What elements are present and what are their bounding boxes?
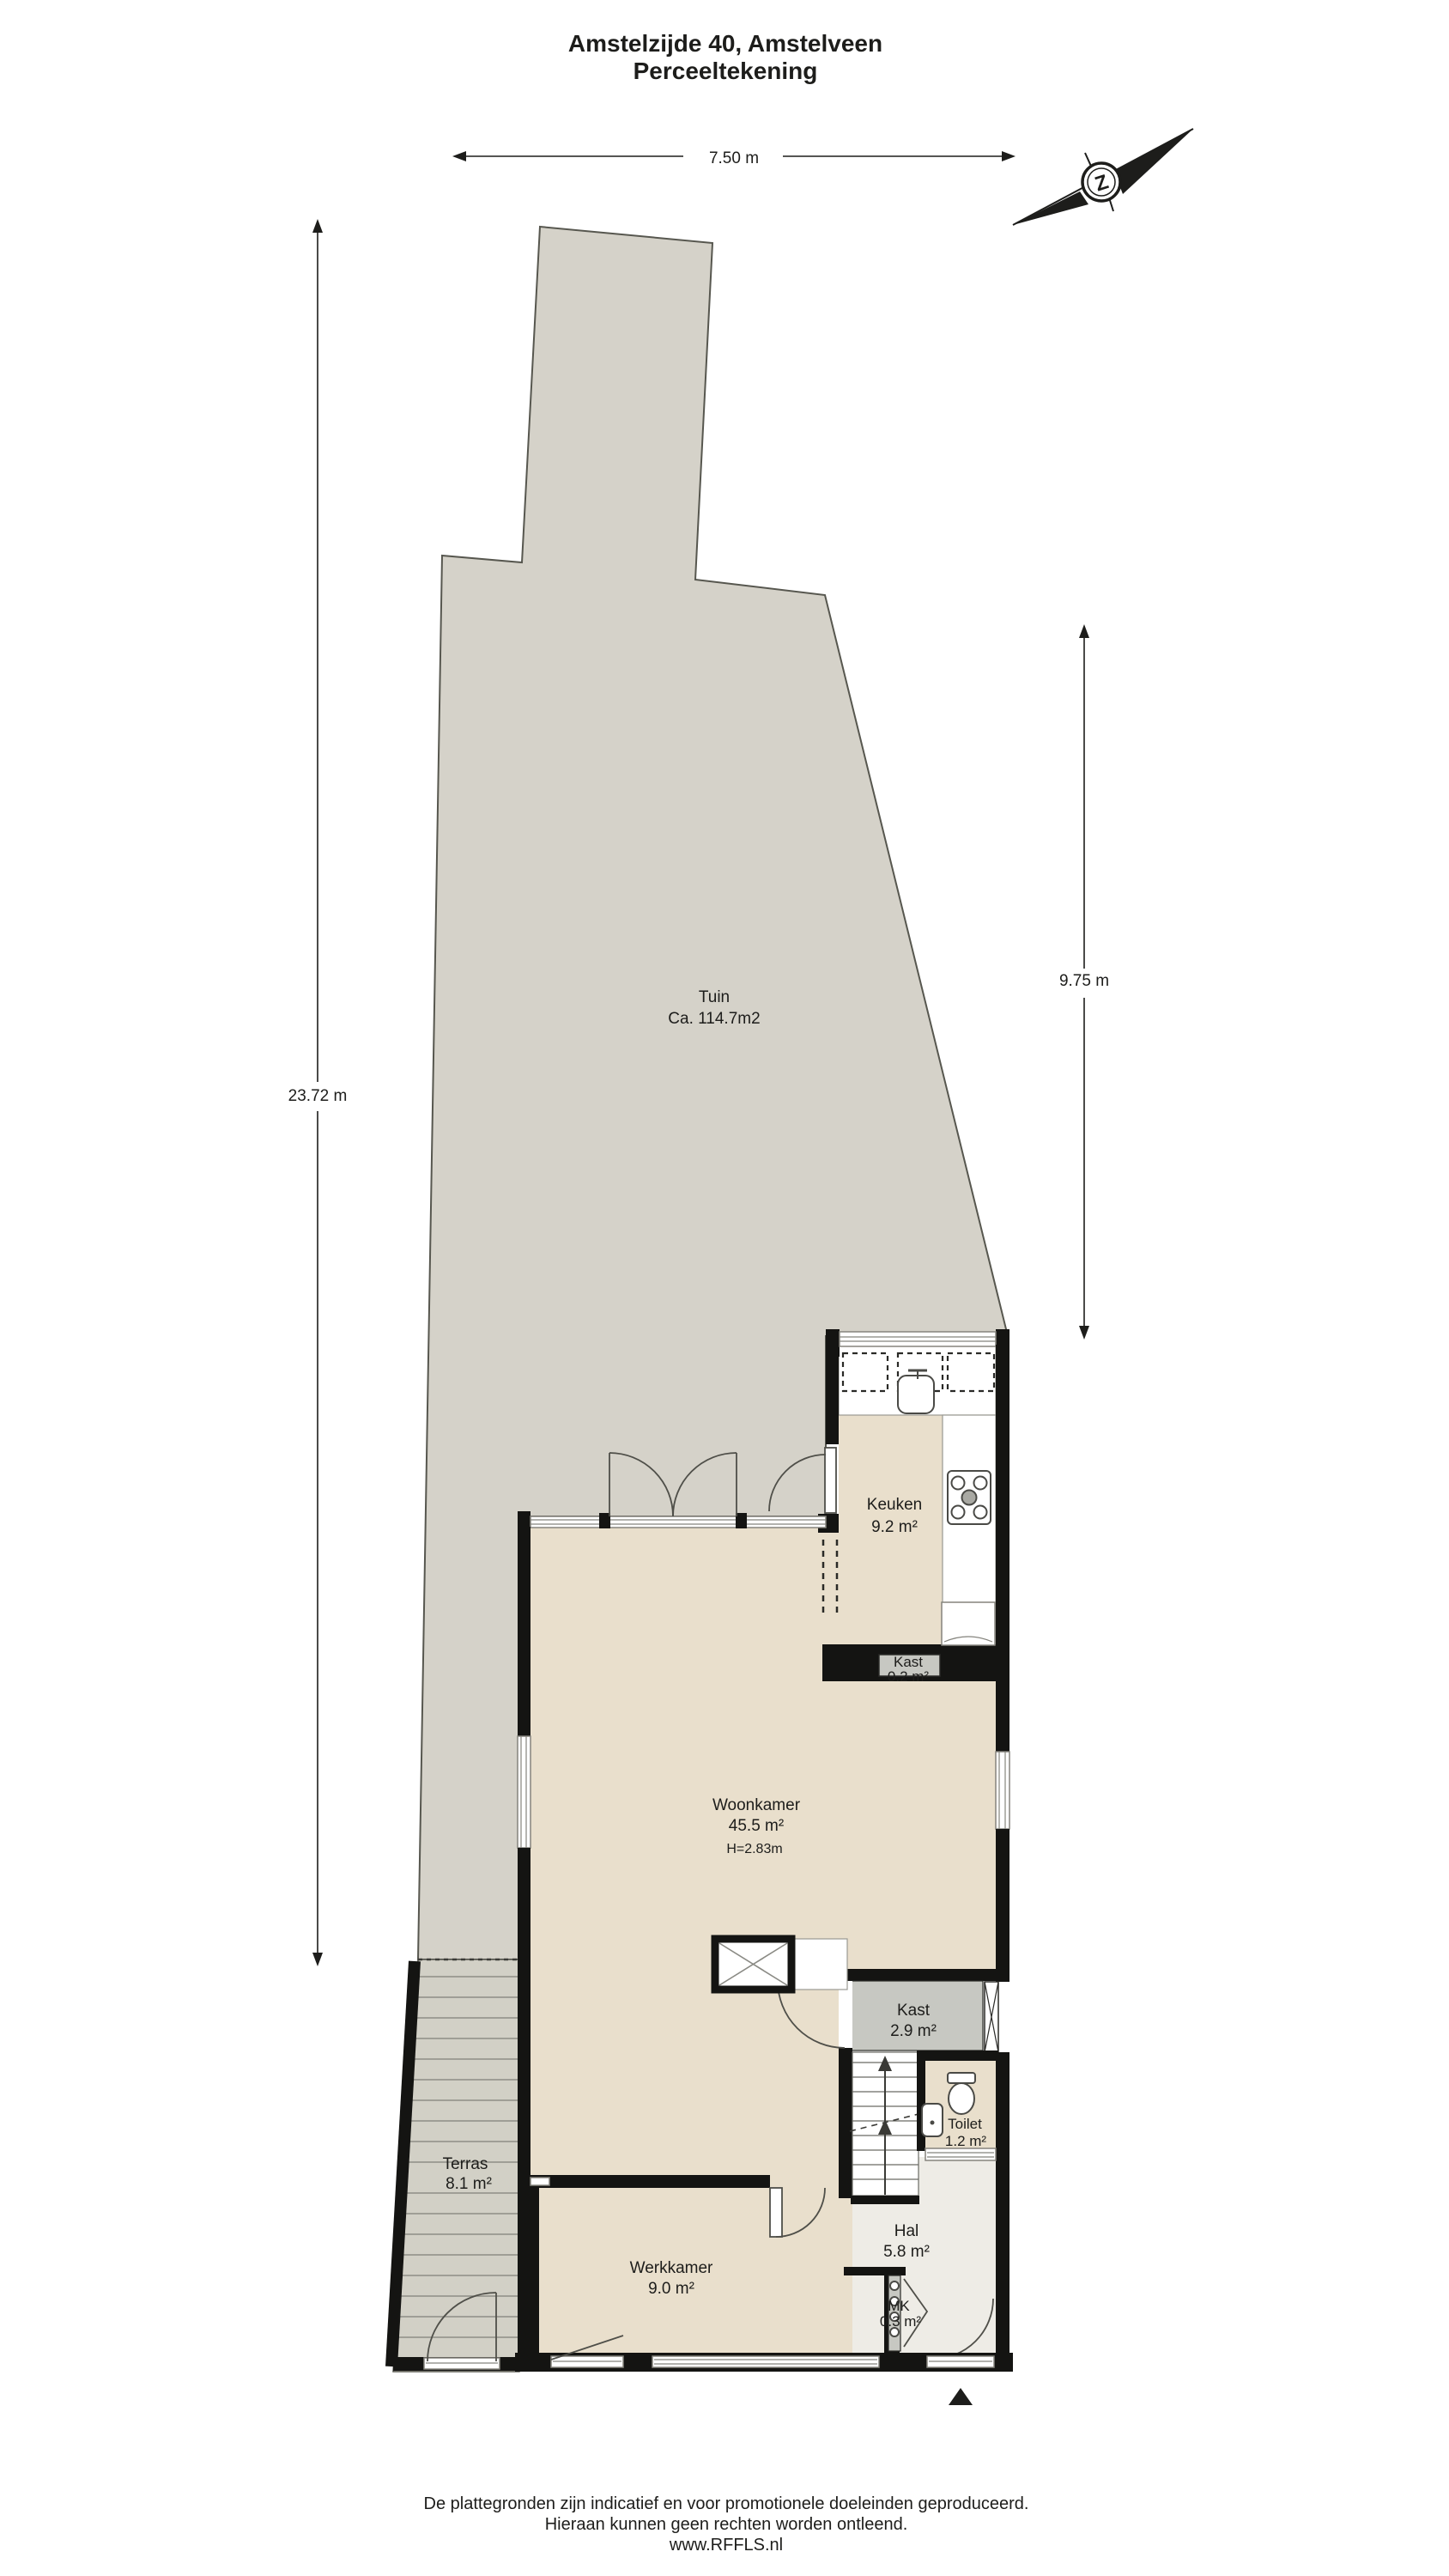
dim-label-plot-depth: 23.72 m <box>288 1087 348 1105</box>
room-label-kast-groot: Kast <box>897 2002 931 2020</box>
room-area-terras: 8.1 m² <box>446 2175 492 2193</box>
sink-icon <box>898 1370 934 1413</box>
room-area-kast-klein: 0.2 m² <box>888 1668 930 1685</box>
floor-plan-page: Z Amstelzijde 40, Amstelveen Perceelteke… <box>0 0 1449 2576</box>
footer-website: www.RFFLS.nl <box>669 2536 783 2555</box>
kitchen-side-door <box>942 1602 995 1645</box>
room-label-terras: Terras <box>443 2155 488 2173</box>
dim-label-garden-depth: 9.75 m <box>1059 972 1109 990</box>
shaft-icon <box>715 1939 847 1990</box>
room-label-werkkamer: Werkkamer <box>630 2259 713 2277</box>
room-area-kast-groot: 2.9 m² <box>890 2022 937 2040</box>
room-area-mk: 0.3 m² <box>880 2313 922 2330</box>
room-label-keuken: Keuken <box>867 1496 922 1514</box>
room-label-hal: Hal <box>894 2222 919 2240</box>
room-area-woonkamer: 45.5 m² <box>729 1817 784 1835</box>
livingroom-left-window <box>518 1736 530 1848</box>
room-label-woonkamer: Woonkamer <box>712 1796 801 1814</box>
floor-plan-canvas: Z Amstelzijde 40, Amstelveen Perceelteke… <box>0 0 1449 2576</box>
stove-icon <box>948 1471 991 1524</box>
footer-disclaimer-2: Hieraan kunnen geen rechten worden ontle… <box>545 2515 908 2534</box>
livingroom-floor <box>528 1527 996 1969</box>
staircase <box>850 2052 919 2204</box>
livingroom-right-window <box>996 1752 1009 1829</box>
room-area-hal: 5.8 m² <box>883 2243 930 2261</box>
livingroom-floor-lower <box>528 1969 839 2188</box>
page-title: Amstelzijde 40, Amstelveen <box>568 30 882 57</box>
room-label-toilet: Toilet <box>948 2116 982 2132</box>
room-area-tuin: Ca. 114.7m2 <box>668 1010 760 1028</box>
toilet-door <box>925 2148 996 2160</box>
room-label-tuin: Tuin <box>699 988 730 1006</box>
toilet-sink-icon <box>922 2104 943 2136</box>
study-window-bottom-2 <box>652 2356 879 2367</box>
entrance-arrow-icon <box>949 2388 973 2405</box>
footer-disclaimer-1: De plattegronden zijn indicatief en voor… <box>424 2494 1029 2513</box>
front-door-sill <box>927 2356 994 2367</box>
room-height-woonkamer: H=2.83m <box>726 1842 782 1856</box>
dim-label-plot-width: 7.50 m <box>709 149 759 167</box>
room-area-toilet: 1.2 m² <box>945 2133 987 2149</box>
toilet-icon <box>948 2073 975 2114</box>
shaft-hatch-right <box>985 1982 998 2052</box>
room-area-keuken: 9.2 m² <box>871 1518 918 1536</box>
page-subtitle: Perceeltekening <box>634 58 818 84</box>
hall-floor-left <box>852 2204 880 2353</box>
room-label-mk: MK <box>888 2298 910 2314</box>
kitchen-top-window <box>840 1332 996 1346</box>
compass-north-icon: Z <box>1013 129 1193 225</box>
room-area-werkkamer: 9.0 m² <box>648 2280 694 2298</box>
livingroom-top-window <box>530 1516 826 1528</box>
